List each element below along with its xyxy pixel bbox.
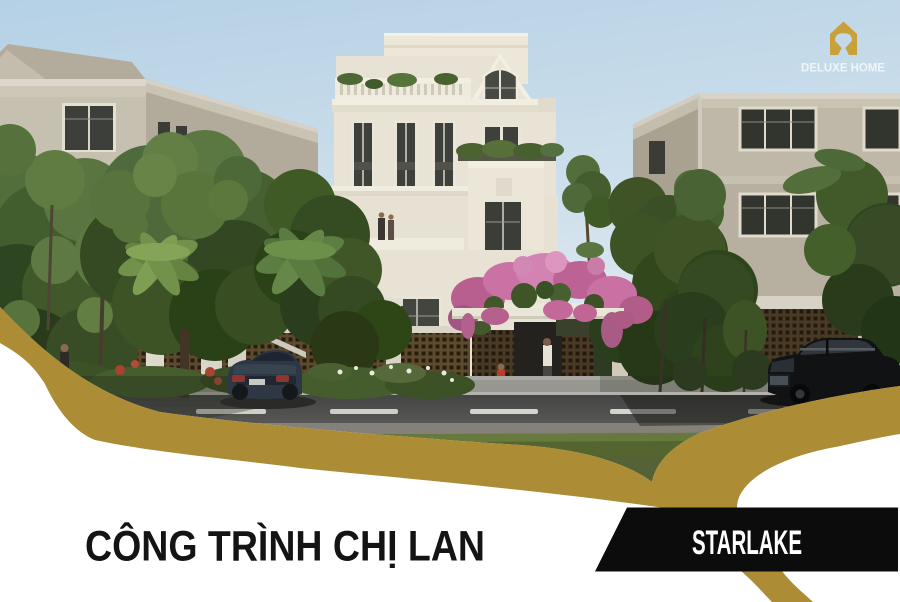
svg-text:DELUXE HOME: DELUXE HOME bbox=[801, 61, 885, 75]
svg-text:STARLAKE: STARLAKE bbox=[692, 524, 802, 562]
svg-text:CÔNG TRÌNH CHỊ LAN: CÔNG TRÌNH CHỊ LAN bbox=[85, 522, 485, 571]
